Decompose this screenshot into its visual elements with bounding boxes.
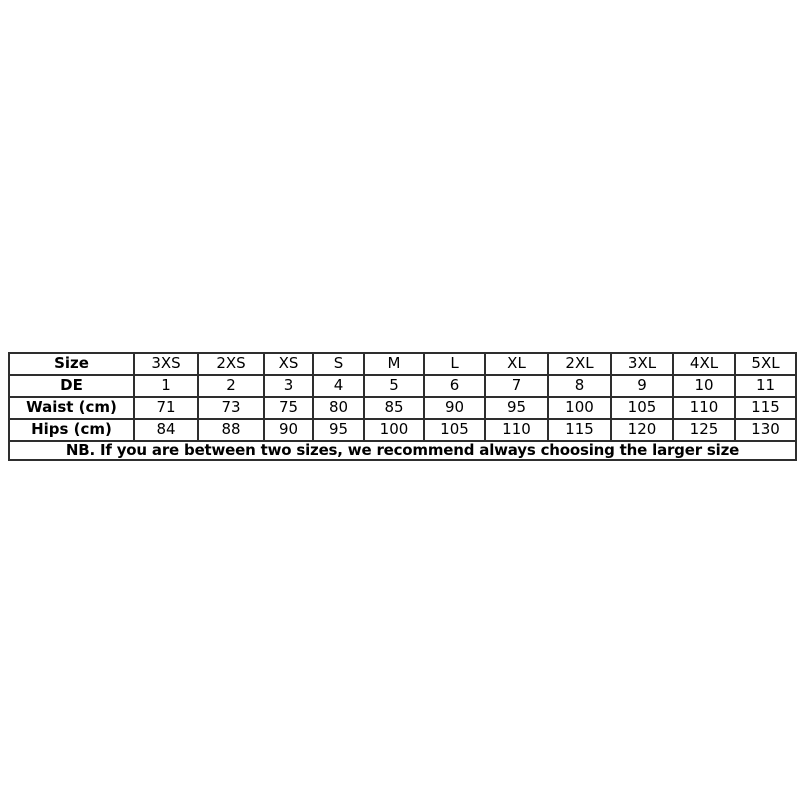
table-cell: 115 xyxy=(548,419,611,441)
table-cell: 88 xyxy=(198,419,264,441)
table-cell: 115 xyxy=(735,397,796,419)
table-cell: 7 xyxy=(485,375,548,397)
table-cell: 9 xyxy=(611,375,673,397)
table-cell: 71 xyxy=(134,397,198,419)
table-cell: 90 xyxy=(424,397,485,419)
table-cell: 2 xyxy=(198,375,264,397)
table-row-waist: Waist (cm) 71 73 75 80 85 90 95 100 105 … xyxy=(9,397,796,419)
table-cell: 105 xyxy=(424,419,485,441)
table-cell: 2XL xyxy=(548,353,611,375)
size-chart-image: Size 3XS 2XS XS S M L XL 2XL 3XL 4XL 5XL… xyxy=(0,0,800,800)
table-cell: 4XL xyxy=(673,353,735,375)
table-cell: 125 xyxy=(673,419,735,441)
table-row-size: Size 3XS 2XS XS S M L XL 2XL 3XL 4XL 5XL xyxy=(9,353,796,375)
table-cell: 3XL xyxy=(611,353,673,375)
table-cell: L xyxy=(424,353,485,375)
table-cell: 120 xyxy=(611,419,673,441)
table-cell: 4 xyxy=(313,375,364,397)
table-row-de: DE 1 2 3 4 5 6 7 8 9 10 11 xyxy=(9,375,796,397)
row-label-hips: Hips (cm) xyxy=(9,419,134,441)
table-cell: 95 xyxy=(313,419,364,441)
table-cell: 95 xyxy=(485,397,548,419)
table-cell: M xyxy=(364,353,424,375)
table-note: NB. If you are between two sizes, we rec… xyxy=(9,441,796,460)
table-cell: XS xyxy=(264,353,313,375)
table-row-note: NB. If you are between two sizes, we rec… xyxy=(9,441,796,460)
table-cell: 1 xyxy=(134,375,198,397)
row-label-size: Size xyxy=(9,353,134,375)
size-chart-table: Size 3XS 2XS XS S M L XL 2XL 3XL 4XL 5XL… xyxy=(8,352,797,461)
table-cell: 6 xyxy=(424,375,485,397)
table-cell: 5 xyxy=(364,375,424,397)
table-cell: 5XL xyxy=(735,353,796,375)
table-cell: 100 xyxy=(548,397,611,419)
table-cell: 90 xyxy=(264,419,313,441)
table-cell: 110 xyxy=(485,419,548,441)
table-cell: 105 xyxy=(611,397,673,419)
table-cell: 100 xyxy=(364,419,424,441)
table-cell: 110 xyxy=(673,397,735,419)
table-cell: 80 xyxy=(313,397,364,419)
table-cell: 73 xyxy=(198,397,264,419)
table-cell: S xyxy=(313,353,364,375)
table-cell: 130 xyxy=(735,419,796,441)
row-label-waist: Waist (cm) xyxy=(9,397,134,419)
table-cell: 10 xyxy=(673,375,735,397)
table-cell: 8 xyxy=(548,375,611,397)
row-label-de: DE xyxy=(9,375,134,397)
table-cell: 3 xyxy=(264,375,313,397)
table-cell: XL xyxy=(485,353,548,375)
table-cell: 75 xyxy=(264,397,313,419)
table-cell: 3XS xyxy=(134,353,198,375)
table-row-hips: Hips (cm) 84 88 90 95 100 105 110 115 12… xyxy=(9,419,796,441)
table-cell: 11 xyxy=(735,375,796,397)
table-cell: 85 xyxy=(364,397,424,419)
table-cell: 84 xyxy=(134,419,198,441)
table-cell: 2XS xyxy=(198,353,264,375)
